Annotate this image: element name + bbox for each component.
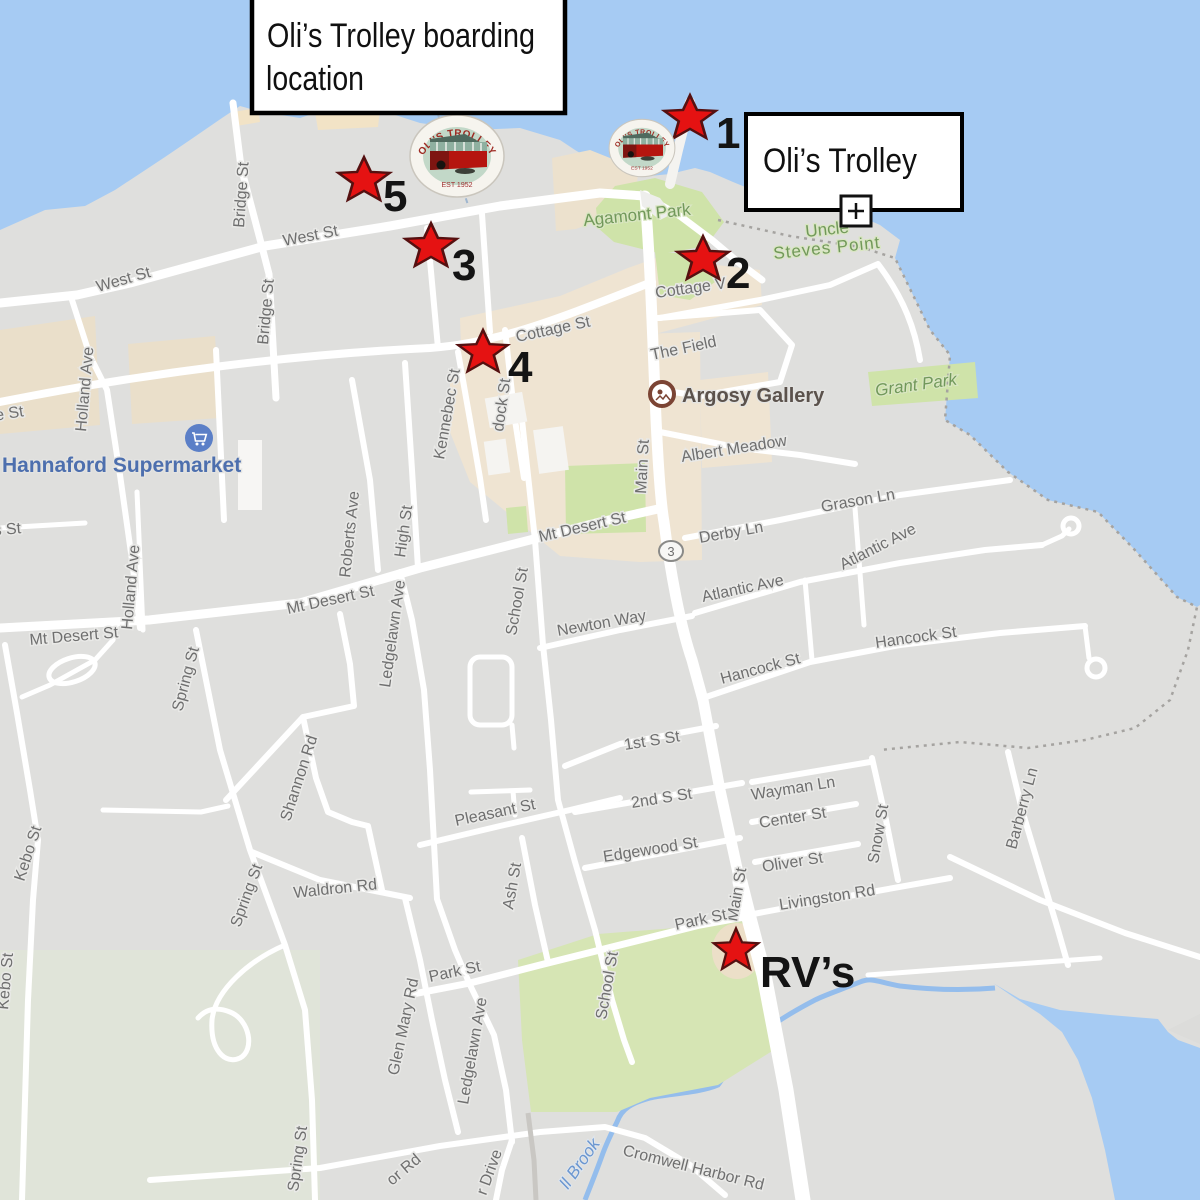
svg-text:EST 1952: EST 1952	[631, 166, 653, 172]
svg-text:1: 1	[716, 109, 740, 158]
svg-text:s St: s St	[0, 520, 22, 539]
svg-text:3: 3	[452, 241, 476, 290]
svg-text:Oli’s Trolley: Oli’s Trolley	[763, 142, 917, 180]
svg-text:RV’s: RV’s	[760, 948, 855, 997]
svg-text:Oli’s Trolley boarding: Oli’s Trolley boarding	[267, 17, 535, 55]
svg-text:Hannaford Supermarket: Hannaford Supermarket	[2, 454, 241, 477]
svg-text:EST 1952: EST 1952	[441, 182, 472, 189]
svg-text:Main St: Main St	[633, 439, 653, 495]
svg-text:location: location	[266, 60, 364, 98]
svg-text:5: 5	[383, 172, 407, 221]
svg-text:2: 2	[726, 249, 750, 298]
svg-text:4: 4	[508, 343, 533, 392]
svg-text:Argosy Gallery: Argosy Gallery	[682, 385, 825, 407]
svg-text:3: 3	[667, 544, 674, 559]
